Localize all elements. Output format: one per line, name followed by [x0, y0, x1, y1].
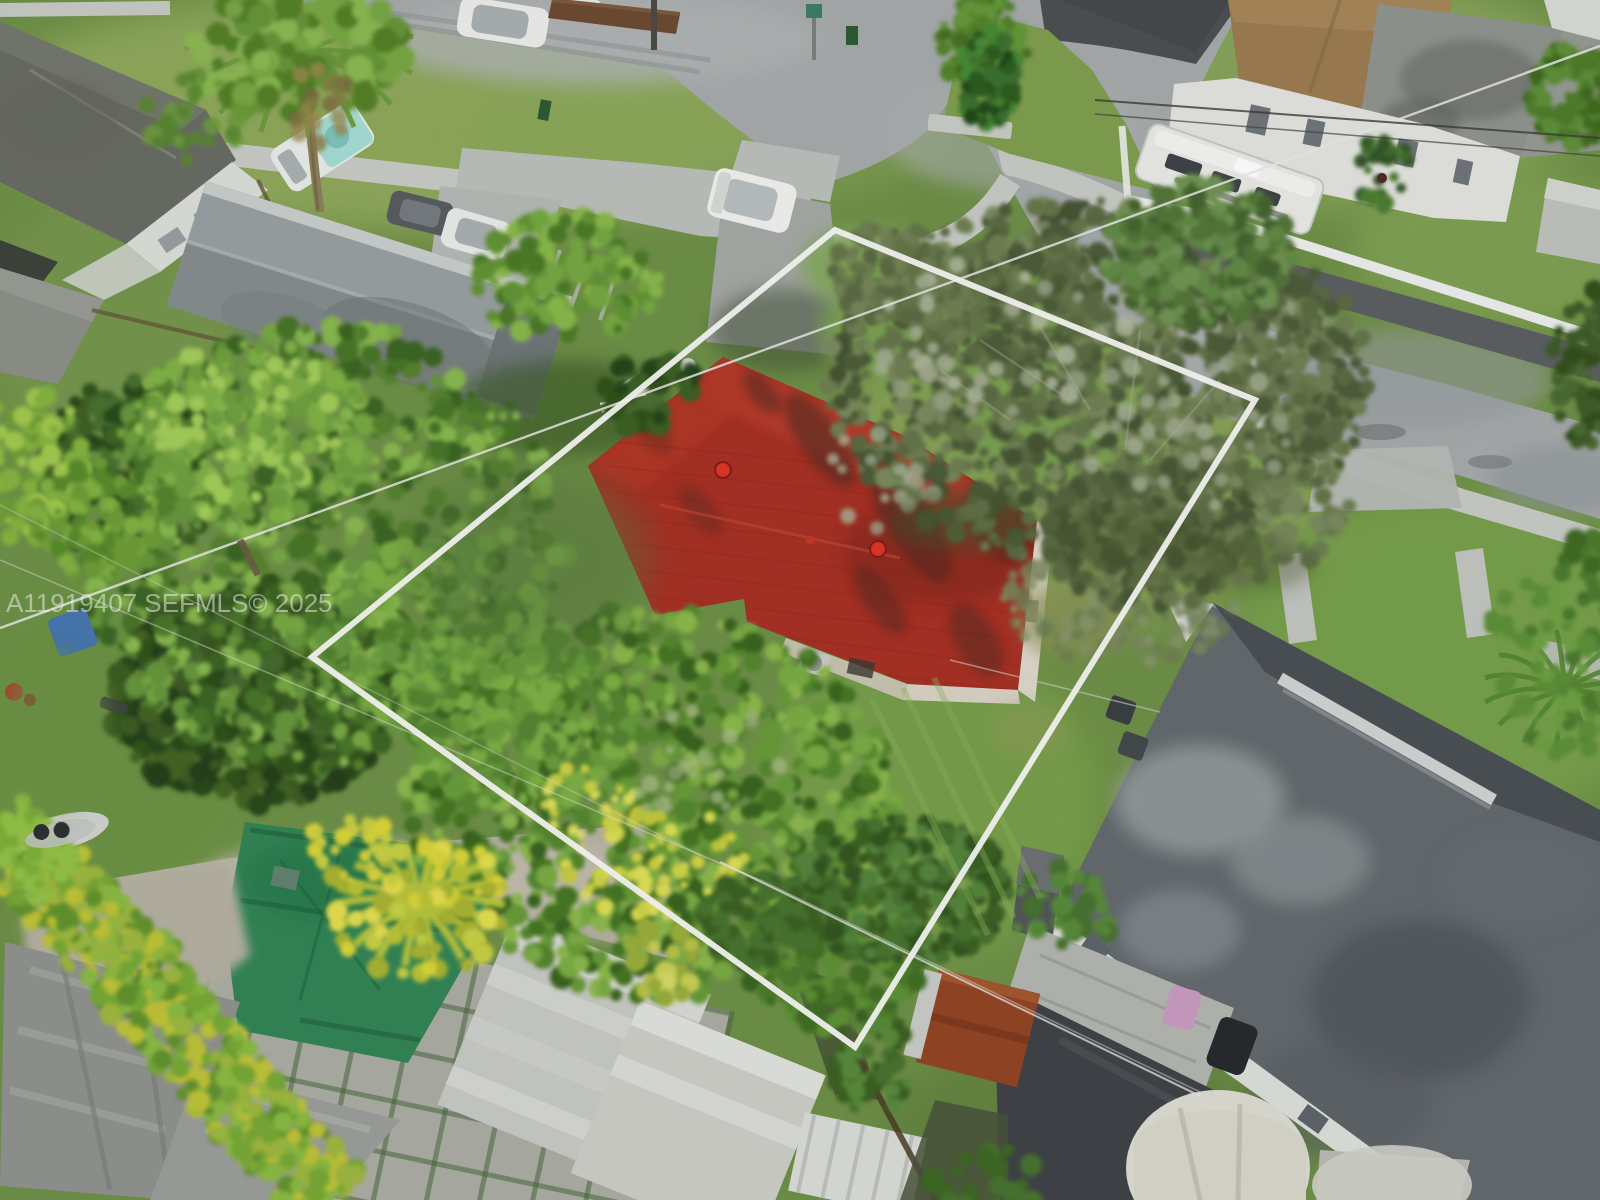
- svg-text:A11919407 SEFMLS© 2025: A11919407 SEFMLS© 2025: [6, 588, 333, 618]
